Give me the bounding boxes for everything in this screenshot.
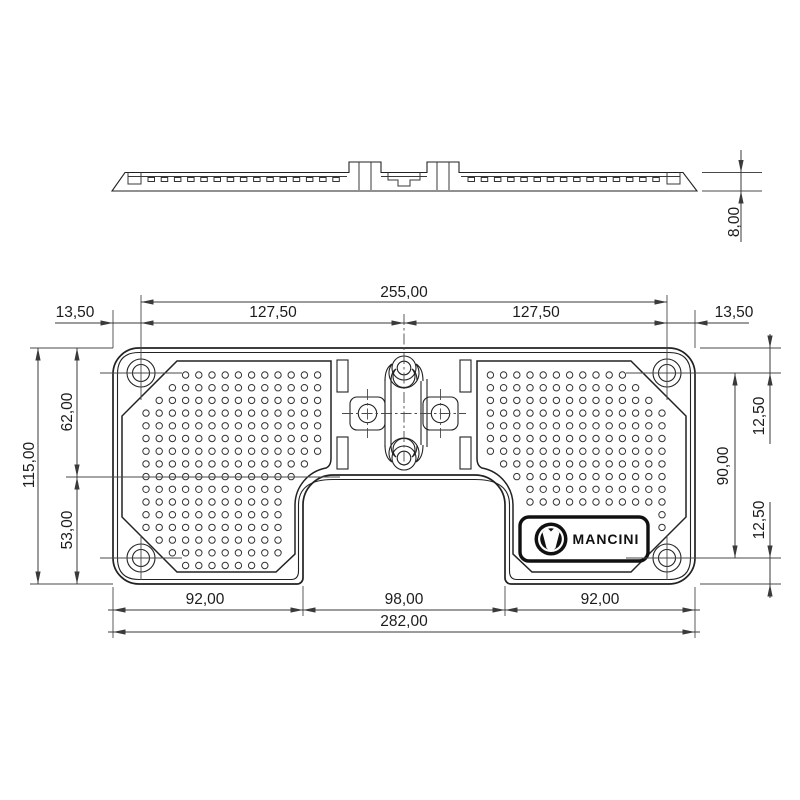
dimension-thickness: 8,00 [702, 150, 762, 242]
slot-bottom-right [460, 437, 471, 469]
perforation-dot [606, 397, 612, 403]
perforation-dot [222, 486, 228, 492]
perforation-dot [632, 385, 638, 391]
profile-tooth [148, 178, 155, 182]
profile-tooth [521, 178, 528, 182]
perforation-dot [566, 448, 572, 454]
perforation-dot [566, 486, 572, 492]
perforation-dot [235, 423, 241, 429]
perforation-dot [235, 410, 241, 416]
perforation-dot [606, 372, 612, 378]
perforation-dot [500, 372, 506, 378]
perforation-dot [169, 397, 175, 403]
perforation-dot [553, 372, 559, 378]
perforation-dot [619, 372, 625, 378]
perforation-dot [275, 410, 281, 416]
perforation-dot [314, 372, 320, 378]
perforation-dot [143, 423, 149, 429]
perforation-dot [209, 423, 215, 429]
perforation-dot [487, 385, 493, 391]
perforation-dot [156, 397, 162, 403]
perforation-dot [209, 486, 215, 492]
perforation-dot [593, 372, 599, 378]
perforation-dot [262, 537, 268, 543]
perforation-dot [540, 410, 546, 416]
perforation-dot [646, 473, 652, 479]
perforation-dot [566, 435, 572, 441]
perforation-dot [527, 461, 533, 467]
perforation-dot [169, 512, 175, 518]
perforation-dot [262, 550, 268, 556]
profile-tooth [174, 178, 181, 182]
perforation-dot [593, 423, 599, 429]
perforation-dot [275, 448, 281, 454]
dim-label-top-hole-offset: 12,50 [751, 396, 768, 435]
perforation-dot [619, 435, 625, 441]
perforation-dot [169, 486, 175, 492]
perforation-dot [514, 423, 520, 429]
perforation-dot [196, 410, 202, 416]
perforation-dot [288, 397, 294, 403]
perforation-dot [248, 499, 254, 505]
perforation-dot [262, 385, 268, 391]
perforation-dot [275, 372, 281, 378]
dim-label-lower: 53,00 [59, 510, 76, 549]
profile-tooth [534, 178, 541, 182]
perforation-dot [527, 486, 533, 492]
perforation-dot [209, 410, 215, 416]
perforation-dot [222, 512, 228, 518]
perforation-dot [659, 486, 665, 492]
perforation-dot [646, 397, 652, 403]
perforation-dot [288, 410, 294, 416]
perforation-dot [222, 524, 228, 530]
perforation-dot [527, 372, 533, 378]
perforation-dot [235, 524, 241, 530]
perforation-dot [632, 473, 638, 479]
perforation-dot [262, 410, 268, 416]
profile-tooth [161, 178, 168, 182]
perforation-dot [196, 448, 202, 454]
profile-tooth [481, 178, 488, 182]
perforation-dot [500, 410, 506, 416]
perforation-dot [222, 410, 228, 416]
dim-label-holes-span: 255,00 [380, 284, 428, 301]
perforation-dot [182, 397, 188, 403]
perforation-dot [301, 372, 307, 378]
perforation-dot [248, 486, 254, 492]
perforation-dot [248, 435, 254, 441]
profile-tooth [547, 178, 554, 182]
perforation-dot [566, 499, 572, 505]
profile-tooth [508, 178, 514, 182]
profile-tooth [600, 178, 607, 182]
perforation-dot [196, 435, 202, 441]
perforation-dot [182, 486, 188, 492]
perforation-dot [169, 550, 175, 556]
perforation-dot [566, 410, 572, 416]
perforation-dot [143, 461, 149, 467]
perforation-dot [632, 461, 638, 467]
perforation-dot [209, 435, 215, 441]
side-right-notch [667, 173, 680, 185]
mancini-m-shield-icon [535, 523, 568, 556]
perforation-dot [262, 499, 268, 505]
perforation-dot [540, 397, 546, 403]
perforation-dot [262, 524, 268, 530]
perforation-dot [143, 512, 149, 518]
profile-tooth [560, 178, 567, 182]
perforation-dot [235, 461, 241, 467]
perforation-dot [514, 448, 520, 454]
perforation-dot [262, 372, 268, 378]
perforation-dot [619, 423, 625, 429]
perforation-dot [619, 499, 625, 505]
perforation-dot [632, 486, 638, 492]
perforation-dot [209, 512, 215, 518]
perforation-dot [514, 385, 520, 391]
perforation-dot [540, 435, 546, 441]
perforation-dot [156, 410, 162, 416]
perforation-dot [222, 550, 228, 556]
perforation-dot [248, 397, 254, 403]
perforation-dot [301, 385, 307, 391]
perforation-dot [196, 550, 202, 556]
perforation-dot [301, 461, 307, 467]
perforation-dot [540, 448, 546, 454]
perforation-dot [500, 397, 506, 403]
profile-tooth [306, 178, 313, 182]
perforation-dot [156, 486, 162, 492]
perforation-dot [222, 423, 228, 429]
perforation-dot [156, 512, 162, 518]
perforation-dot [580, 385, 586, 391]
perforation-dot [222, 385, 228, 391]
perforation-dot [156, 435, 162, 441]
perforation-dot [566, 461, 572, 467]
perforation-dot [262, 512, 268, 518]
perforation-dot [182, 410, 188, 416]
profile-tooth [320, 178, 327, 182]
perforation-dot [169, 385, 175, 391]
perforation-dot [540, 461, 546, 467]
perforation-dot [500, 385, 506, 391]
perforation-dot [553, 448, 559, 454]
perforation-dot [275, 423, 281, 429]
perforation-dot [540, 423, 546, 429]
perforation-dot [235, 499, 241, 505]
perforation-dot [646, 435, 652, 441]
profile-tooth [214, 178, 221, 182]
perforation-dot [169, 410, 175, 416]
perforation-dot [619, 385, 625, 391]
dim-label-overall-width: 282,00 [380, 613, 428, 630]
perforation-dot [275, 385, 281, 391]
perforation-dot [196, 486, 202, 492]
perforation-dot [275, 461, 281, 467]
perforation-dot [275, 512, 281, 518]
perforation-dot [169, 524, 175, 530]
perforation-dot [500, 461, 506, 467]
perforation-dot [301, 423, 307, 429]
perforation-dot [169, 499, 175, 505]
perforation-dot [169, 461, 175, 467]
perforation-dot [169, 448, 175, 454]
perforation-dot [500, 448, 506, 454]
perforation-dot [487, 372, 493, 378]
perforation-dot [580, 486, 586, 492]
perforation-dot [580, 423, 586, 429]
perforation-dot [632, 448, 638, 454]
perforation-dot [580, 397, 586, 403]
perforation-dot [540, 499, 546, 505]
profile-tooth [626, 178, 633, 182]
profile-tooth [201, 178, 208, 182]
dim-label-right-half: 127,50 [512, 304, 560, 321]
perforation-dot [262, 397, 268, 403]
perforation-dot [143, 435, 149, 441]
perforation-dot [646, 448, 652, 454]
perforation-dot [288, 461, 294, 467]
perforation-dot [262, 461, 268, 467]
perforation-dot [182, 562, 188, 568]
perforation-dot [540, 486, 546, 492]
dim-label-right-tab: 92,00 [581, 591, 620, 608]
perforation-dot [553, 410, 559, 416]
perforation-dot [235, 550, 241, 556]
perforation-dot [527, 473, 533, 479]
perforation-dot [222, 537, 228, 543]
perforation-dot [487, 397, 493, 403]
perforation-dot [209, 562, 215, 568]
perforation-dot [566, 397, 572, 403]
perforation-dot [566, 473, 572, 479]
perforation-dot [566, 372, 572, 378]
slot-top-left [337, 360, 348, 392]
perforation-dot [659, 499, 665, 505]
perforation-dot [580, 473, 586, 479]
perforation-dot [182, 524, 188, 530]
perforation-dot [182, 385, 188, 391]
perforation-dot [301, 448, 307, 454]
perforation-dot [169, 435, 175, 441]
perforation-dot [659, 448, 665, 454]
profile-tooth [494, 178, 501, 182]
drawing-canvas: 8,00 [0, 0, 800, 800]
perforation-dot [659, 524, 665, 530]
perforation-dot [143, 524, 149, 530]
perforation-dot [182, 499, 188, 505]
perforation-dot [514, 461, 520, 467]
perforation-dot [196, 562, 202, 568]
perforation-dot [619, 448, 625, 454]
perforation-dot [182, 423, 188, 429]
dim-label-cutout-width: 98,00 [385, 591, 424, 608]
perforation-dot [288, 372, 294, 378]
perforation-dot [262, 423, 268, 429]
perforation-dot [514, 397, 520, 403]
perforation-dot [288, 385, 294, 391]
perforation-dot [580, 448, 586, 454]
perforation-dot [527, 385, 533, 391]
perforation-dot [156, 461, 162, 467]
perforation-dot [248, 524, 254, 530]
perforation-dot [301, 435, 307, 441]
perforation-dot [619, 473, 625, 479]
perforation-dot [196, 499, 202, 505]
perforation-dot [619, 397, 625, 403]
side-center-tray [388, 173, 420, 187]
perforation-dot [553, 486, 559, 492]
perforation-dot [632, 499, 638, 505]
perforation-dot [540, 473, 546, 479]
profile-tooth [227, 178, 234, 182]
profile-tooth [653, 178, 660, 182]
perforation-dot [606, 423, 612, 429]
perforation-dot [514, 435, 520, 441]
profile-tooth [188, 178, 195, 182]
perforation-dot [500, 435, 506, 441]
perforation-dot [222, 448, 228, 454]
perforation-dot [314, 385, 320, 391]
perforation-dot [182, 461, 188, 467]
profile-tooth [333, 178, 340, 182]
perforation-dot [182, 537, 188, 543]
perforation-dot [593, 486, 599, 492]
perforation-dot [222, 435, 228, 441]
perforation-dot [632, 397, 638, 403]
perforation-dot [209, 524, 215, 530]
perforation-dot [514, 473, 520, 479]
perforation-dot [248, 372, 254, 378]
perforation-dot [262, 562, 268, 568]
plan-view: MANCINI [113, 314, 695, 584]
dim-label-upper: 62,00 [59, 392, 76, 431]
perforation-dot [659, 410, 665, 416]
perforation-dot [275, 397, 281, 403]
perforation-dot [593, 410, 599, 416]
profile-tooth [280, 178, 287, 182]
perforation-dot [275, 537, 281, 543]
perforation-dot [288, 448, 294, 454]
perforation-dot [182, 512, 188, 518]
perforation-dot [275, 550, 281, 556]
perforation-dot [262, 448, 268, 454]
perforation-dot [580, 372, 586, 378]
perforation-dot [196, 461, 202, 467]
perforation-dot [235, 562, 241, 568]
perforation-dot [606, 435, 612, 441]
perforation-dot [169, 537, 175, 543]
perforation-dot [580, 410, 586, 416]
perforation-dot [275, 486, 281, 492]
perforation-dot [156, 448, 162, 454]
perforation-dot [209, 372, 215, 378]
perforation-dot [606, 385, 612, 391]
perforation-dot [143, 410, 149, 416]
perforation-dot [314, 423, 320, 429]
perforation-dot [235, 512, 241, 518]
profile-tooth [267, 178, 274, 182]
perforation-dot [606, 461, 612, 467]
dim-label-left-margin: 13,50 [56, 304, 95, 321]
perforation-dot [487, 435, 493, 441]
perforation-dot [248, 385, 254, 391]
perforation-dot [606, 448, 612, 454]
perforation-dot [156, 499, 162, 505]
perforation-dot [646, 499, 652, 505]
perforation-dot [209, 448, 215, 454]
perforation-dot [632, 435, 638, 441]
profile-tooth [587, 178, 594, 182]
perforation-dot [527, 410, 533, 416]
perforation-dot [593, 473, 599, 479]
perforation-dot [288, 435, 294, 441]
perforation-dot [646, 423, 652, 429]
perforation-dot [553, 397, 559, 403]
perforation-dot [514, 372, 520, 378]
perforation-dot [593, 448, 599, 454]
perforation-dot [514, 410, 520, 416]
perforation-dot [235, 385, 241, 391]
perforation-dot [553, 461, 559, 467]
dim-label-left-tab: 92,00 [186, 591, 225, 608]
perforation-dot [593, 385, 599, 391]
perforation-dot [527, 435, 533, 441]
perforation-dot [606, 486, 612, 492]
perforation-dot [235, 435, 241, 441]
profile-tooth [574, 178, 581, 182]
dim-label-left-half: 127,50 [249, 304, 297, 321]
profile-tooth [640, 178, 647, 182]
perforation-dot [553, 385, 559, 391]
perforation-dot [248, 448, 254, 454]
perforation-dot [487, 448, 493, 454]
dim-label-right-margin: 13,50 [715, 304, 754, 321]
perforation-dot [248, 423, 254, 429]
perforation-dot [540, 385, 546, 391]
perforation-dot [659, 435, 665, 441]
perforation-dot [500, 423, 506, 429]
brand-badge: MANCINI [520, 517, 648, 561]
technical-drawing-page: 8,00 [0, 0, 800, 800]
perforation-dot [248, 562, 254, 568]
perforation-dot [646, 486, 652, 492]
perforation-dot [248, 550, 254, 556]
perforation-dot [182, 372, 188, 378]
perforation-dot [566, 423, 572, 429]
perforation-dot [593, 461, 599, 467]
perforation-dot [553, 423, 559, 429]
perforation-dot [553, 499, 559, 505]
perforation-dot [619, 410, 625, 416]
perforation-dot [553, 473, 559, 479]
dim-label-bottom-hole-offset: 12,50 [751, 500, 768, 539]
perforation-dot [169, 423, 175, 429]
slot-bottom-left [337, 437, 348, 469]
perforation-dot [196, 512, 202, 518]
perforation-dot [646, 410, 652, 416]
perforation-dot [182, 550, 188, 556]
perforation-dot [487, 423, 493, 429]
side-teeth-pattern [148, 178, 659, 182]
perforation-dot [222, 499, 228, 505]
perforation-dot [606, 473, 612, 479]
perforation-dot [580, 461, 586, 467]
perforation-dot [182, 435, 188, 441]
perforation-dot [209, 550, 215, 556]
perforation-dot [235, 486, 241, 492]
